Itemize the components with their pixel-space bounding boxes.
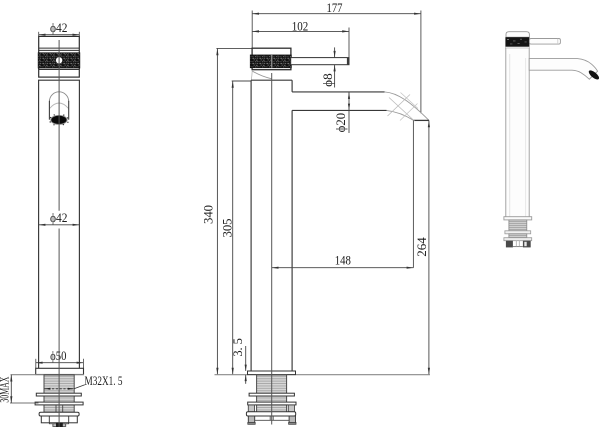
svg-text:264: 264 [415,236,429,256]
svg-text:305: 305 [221,219,235,238]
svg-text:ϕ20: ϕ20 [334,113,348,133]
svg-text:M32X1. 5: M32X1. 5 [85,374,123,388]
svg-text:340: 340 [202,205,216,224]
svg-text:ϕ42: ϕ42 [50,21,68,35]
svg-text:ϕ42: ϕ42 [50,211,68,225]
svg-text:ϕ8: ϕ8 [321,73,335,87]
svg-text:148: 148 [335,253,351,267]
svg-text:177: 177 [327,1,343,15]
svg-text:30MAX: 30MAX [0,377,11,403]
svg-text:ϕ50: ϕ50 [50,349,66,363]
svg-text:3. 5: 3. 5 [231,338,245,357]
